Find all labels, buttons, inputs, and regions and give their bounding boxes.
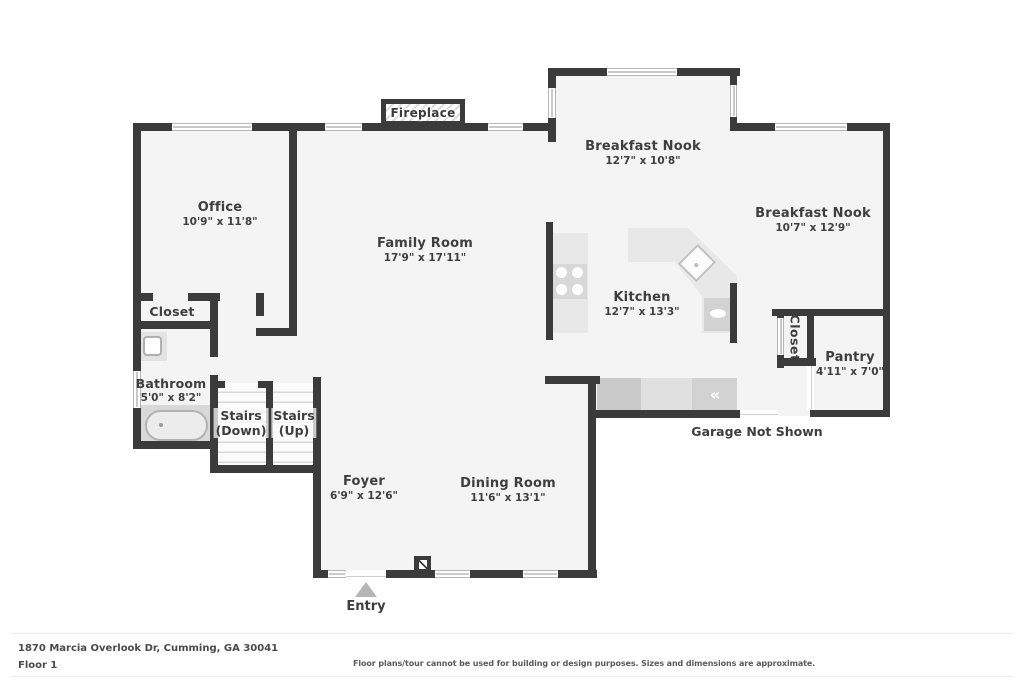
- window: [730, 85, 737, 117]
- pantry-door-opening: [807, 366, 814, 410]
- burner-icon: [556, 267, 567, 278]
- room-label-family-room: Family Room 17'9" x 17'11": [377, 236, 473, 264]
- room-label-stairs-up: Stairs (Up): [271, 408, 316, 438]
- burner-icon: [572, 284, 583, 295]
- window: [777, 318, 784, 355]
- kitchen-counter-bottom: [641, 378, 692, 410]
- entry-arrow-icon: [355, 582, 377, 597]
- floor-nook-bumpout: [552, 72, 734, 132]
- room-label-foyer: Foyer 6'9" x 12'6": [330, 474, 398, 502]
- window: [548, 88, 556, 118]
- wall-segment: [588, 376, 596, 578]
- room-label-pantry: Pantry 4'11" x 7'0": [816, 350, 884, 378]
- door-opening: [153, 293, 188, 301]
- property-address: 1870 Marcia Overlook Dr, Cumming, GA 300…: [18, 643, 278, 654]
- fireplace-label: Fireplace: [390, 106, 455, 120]
- burner-icon: [556, 284, 567, 295]
- stove-icon: [553, 264, 587, 299]
- window: [775, 123, 847, 131]
- window: [607, 68, 677, 76]
- wall-segment: [807, 316, 814, 366]
- window: [172, 123, 252, 131]
- window: [523, 570, 558, 578]
- door-opening: [210, 357, 218, 375]
- floor-plan-canvas: «: [0, 0, 1024, 682]
- appliance-chevron-icon: «: [692, 378, 737, 410]
- wall-segment: [133, 441, 218, 449]
- room-label-office: Office 10'9" x 11'8": [182, 200, 257, 228]
- wall-segment: [546, 222, 553, 340]
- burner-icon: [572, 267, 583, 278]
- wall-segment: [256, 293, 264, 316]
- room-label-stairs-down: Stairs (Down): [214, 408, 269, 438]
- window: [488, 123, 523, 131]
- garage-note-label: Garage Not Shown: [691, 424, 822, 439]
- window: [328, 570, 346, 578]
- front-door-icon: [414, 556, 431, 572]
- entry-label: Entry: [346, 599, 385, 614]
- door-opening: [220, 293, 256, 301]
- footer-divider: [10, 633, 1014, 634]
- wall-segment: [810, 410, 890, 417]
- wall-segment: [210, 293, 218, 472]
- garage-door-opening: [740, 410, 777, 418]
- wall-segment: [289, 123, 297, 336]
- disclaimer-text: Floor plans/tour cannot be used for buil…: [353, 659, 815, 668]
- room-label-dining-room: Dining Room 11'6" x 13'1": [460, 476, 556, 504]
- bottom-divider: [10, 676, 1014, 677]
- wall-segment: [883, 123, 890, 417]
- bathroom-vanity-icon: [140, 332, 167, 361]
- bathtub-icon: [145, 410, 208, 441]
- room-label-breakfast-nook-1: Breakfast Nook 12'7" x 10'8": [585, 139, 701, 167]
- floor-label: Floor 1: [18, 660, 57, 671]
- wall-segment: [133, 321, 218, 329]
- dishwasher-icon: [704, 298, 732, 331]
- fireplace: Fireplace: [381, 99, 465, 126]
- wall-segment: [592, 410, 740, 418]
- entry-door-opening: [346, 570, 386, 578]
- kitchen-appliance-range: «: [692, 378, 737, 410]
- room-label-closet-right: Closet: [788, 315, 803, 362]
- kitchen-appliance-fridge: [597, 378, 641, 410]
- window: [325, 123, 362, 131]
- window: [435, 570, 470, 578]
- room-label-kitchen: Kitchen 12'7" x 13'3": [604, 290, 679, 318]
- wall-segment: [730, 283, 737, 343]
- wall-segment: [210, 465, 320, 473]
- room-label-breakfast-nook-2: Breakfast Nook 10'7" x 12'9": [755, 206, 871, 234]
- room-label-closet-left: Closet: [149, 304, 194, 319]
- room-label-bathroom: Bathroom 5'0" x 8'2": [136, 376, 207, 404]
